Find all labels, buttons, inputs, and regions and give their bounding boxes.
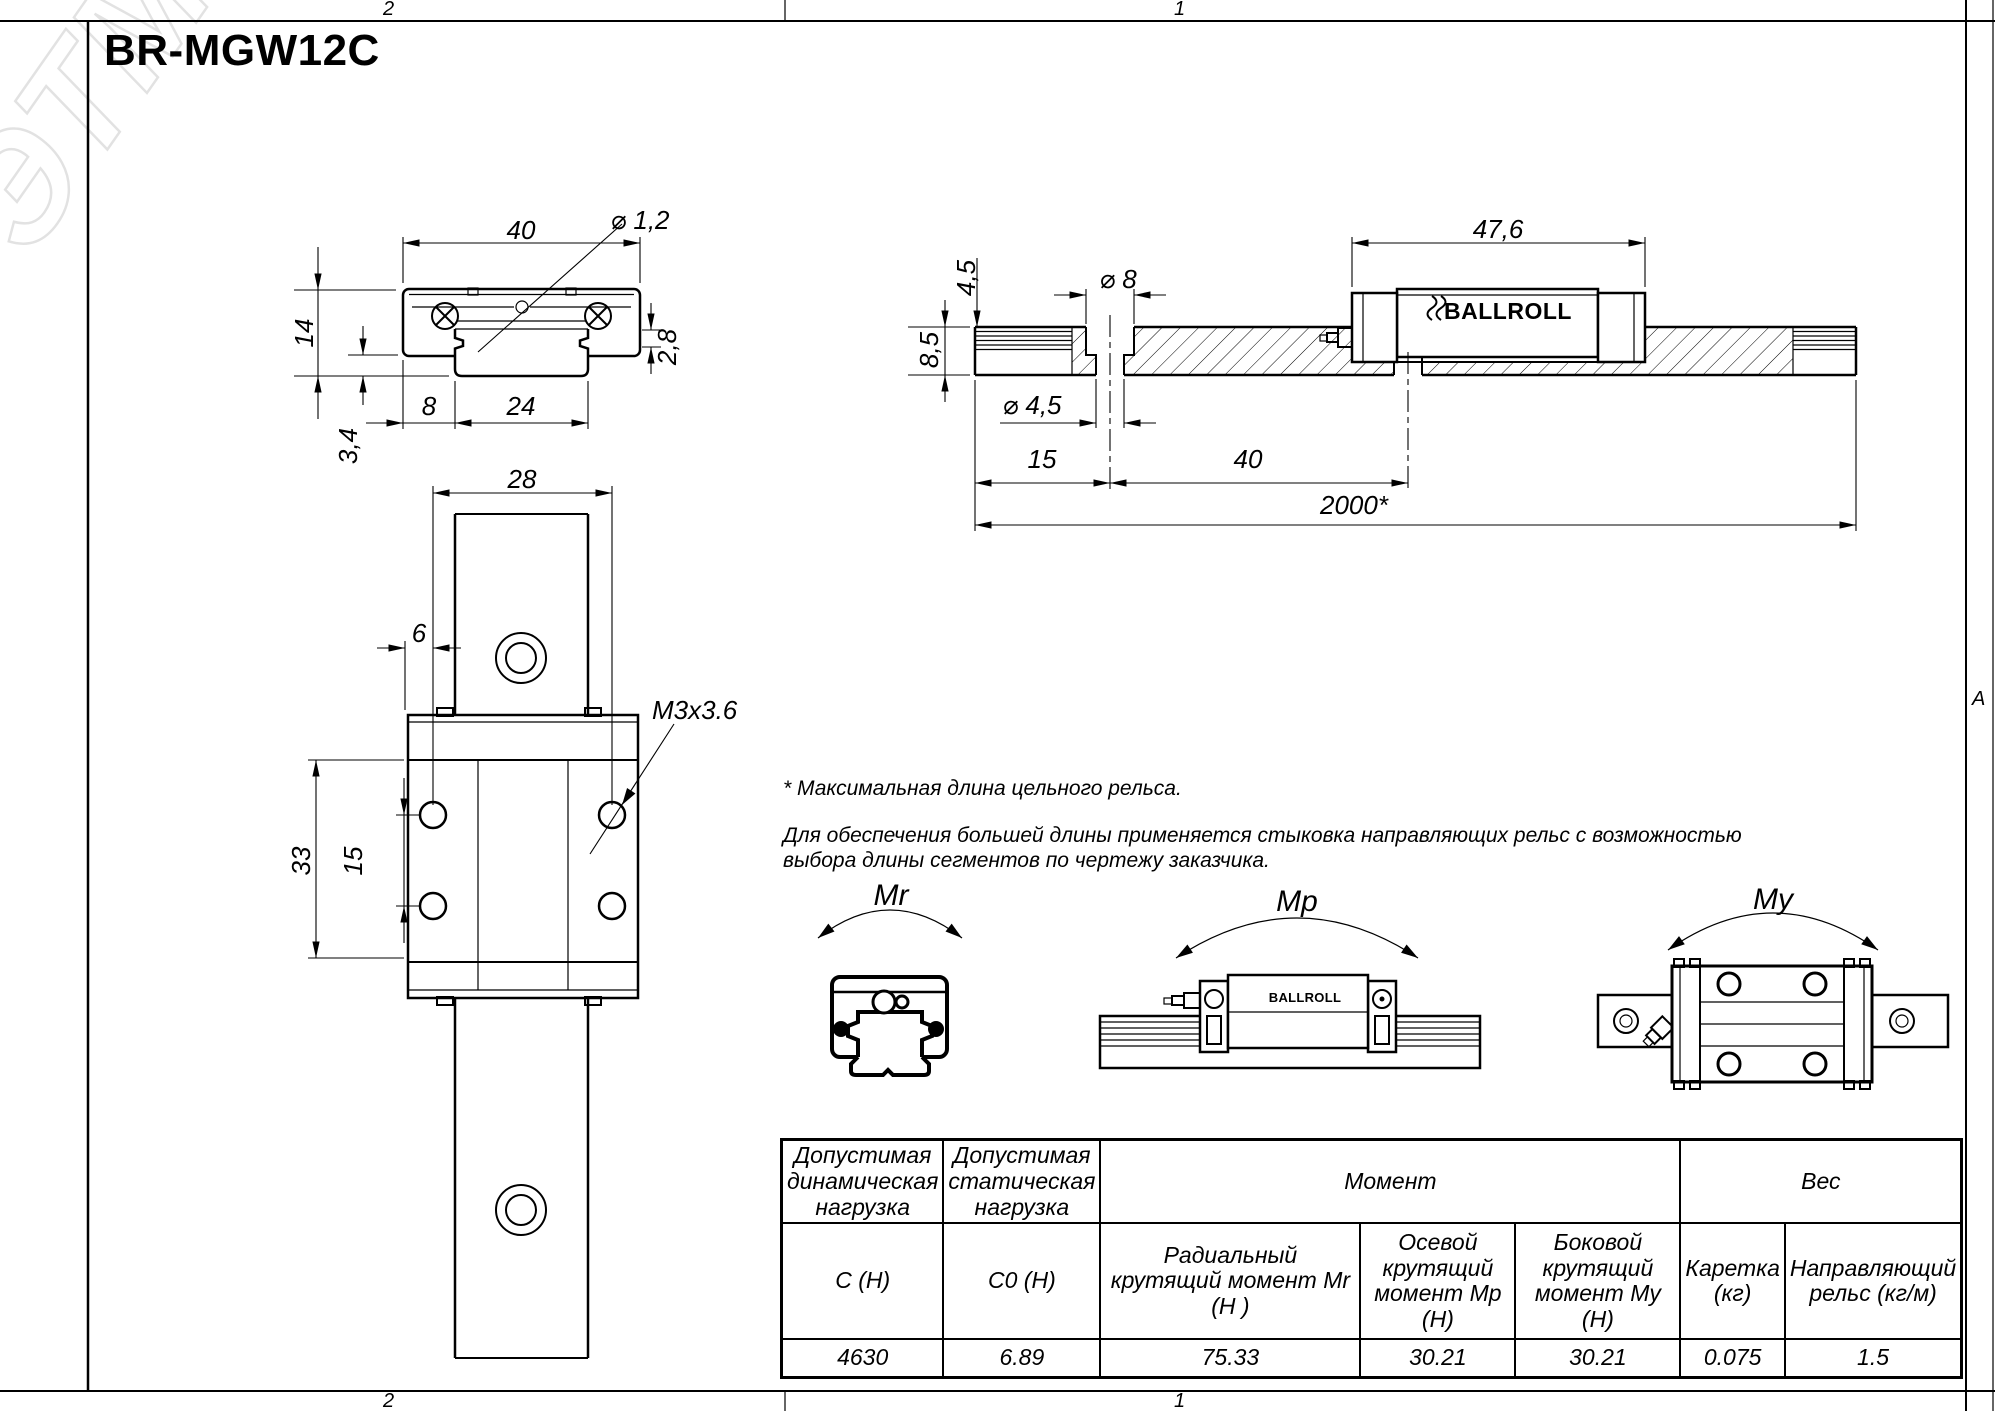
th-dynamic-load: Допустимая динамическая нагрузка — [782, 1140, 944, 1224]
zone-top-left: 2 — [383, 0, 394, 21]
front-view — [403, 224, 640, 376]
dim-front-race: 2,8 — [652, 328, 682, 366]
dim-side-rail-length: 2000* — [1319, 490, 1389, 520]
mount-hole — [420, 893, 446, 919]
dim-side-cbore-depth: 4,5 — [951, 259, 981, 296]
th-moment: Момент — [1100, 1140, 1680, 1224]
value-rail: 1.5 — [1785, 1339, 1962, 1378]
th-weight: Вес — [1680, 1140, 1961, 1224]
value-mr: 75.33 — [1100, 1339, 1360, 1378]
zone-bottom-right: 1 — [1174, 1390, 1185, 1411]
th-mr: Радиальный крутящий момент Mr (Н ) — [1100, 1223, 1360, 1339]
th-static-load: Допустимая статическая нагрузка — [943, 1140, 1100, 1224]
dim-plan-offset: 6 — [412, 618, 427, 648]
moment-my: My — [1598, 883, 1948, 1089]
dim-front-height: 14 — [289, 319, 319, 348]
dim-side-end-offset: 15 — [1028, 444, 1057, 474]
value-my: 30.21 — [1515, 1339, 1680, 1378]
moment-my-label: My — [1753, 883, 1795, 916]
dim-plan-thread: M3x3.6 — [652, 695, 738, 725]
zone-top-right: 1 — [1174, 0, 1185, 21]
mount-hole — [599, 893, 625, 919]
dim-side-rail-height: 8,5 — [914, 331, 944, 368]
dim-plan-pitch-w: 28 — [507, 464, 537, 494]
th-my: Боковой крутящий момент My (Н) — [1515, 1223, 1680, 1339]
moment-mr-icon — [832, 977, 947, 1075]
th-carriage: Каретка (кг) — [1680, 1223, 1784, 1339]
moment-mp: Mp BALLROLL — [1100, 885, 1480, 1068]
dim-side-cbore-dia: ⌀ 8 — [1099, 264, 1137, 294]
mount-hole — [420, 802, 446, 828]
value-c: 4630 — [782, 1339, 944, 1378]
plan-view — [408, 514, 638, 1358]
note-body-line2: выбора длины сегментов по чертежу заказч… — [783, 848, 1742, 873]
dim-front-hole-dia: ⌀ 1,2 — [610, 205, 670, 235]
dim-front-offset: 8 — [422, 391, 437, 421]
moment-mp-icon: BALLROLL — [1100, 975, 1480, 1068]
th-c: C (Н) — [782, 1223, 944, 1339]
th-rail: Направляющий рельс (кг/м) — [1785, 1223, 1962, 1339]
notes-block: * Максимальная длина цельного рельса. Дл… — [783, 776, 1742, 873]
th-c0: C0 (Н) — [943, 1223, 1100, 1339]
dim-side-hole-pitch: 40 — [1234, 444, 1263, 474]
moment-mr: Mr — [815, 879, 965, 1075]
dim-plan-pitch-15: 15 — [338, 846, 368, 875]
dim-front-rail-width: 24 — [506, 391, 536, 421]
value-mp: 30.21 — [1360, 1339, 1515, 1378]
ballroll-logo: BALLROLL — [1428, 296, 1572, 324]
moment-my-icon — [1598, 959, 1948, 1089]
dim-side-carriage-length: 47,6 — [1473, 214, 1524, 244]
note-body-line1: Для обеспечения большей длины применяетс… — [783, 823, 1742, 848]
dim-front-foot: 3,4 — [333, 428, 363, 464]
drawing-sheet: ЭТМ — [0, 0, 1995, 1411]
dim-side-hole-dia: ⌀ 4,5 — [1002, 390, 1062, 420]
zone-bottom-left: 2 — [383, 1390, 394, 1411]
moment-mr-label: Mr — [874, 879, 910, 912]
value-carriage: 0.075 — [1680, 1339, 1784, 1378]
note-max-length: * Максимальная длина цельного рельса. — [783, 776, 1742, 801]
value-c0: 6.89 — [943, 1339, 1100, 1378]
page-title: BR-MGW12C — [104, 26, 380, 76]
dim-front-width: 40 — [507, 215, 536, 245]
ballroll-logo-text: BALLROLL — [1444, 298, 1572, 324]
spec-table: Допустимая динамическая нагрузка Допусти… — [780, 1138, 1963, 1379]
zone-right-marker: A — [1972, 688, 1985, 711]
ballroll-logo-mini: BALLROLL — [1269, 990, 1341, 1005]
moment-mp-label: Mp — [1276, 885, 1318, 918]
side-view: BALLROLL — [975, 289, 1856, 375]
th-mp: Осевой крутящий момент Mp (Н) — [1360, 1223, 1515, 1339]
dim-plan-pitch-33: 33 — [286, 846, 316, 875]
